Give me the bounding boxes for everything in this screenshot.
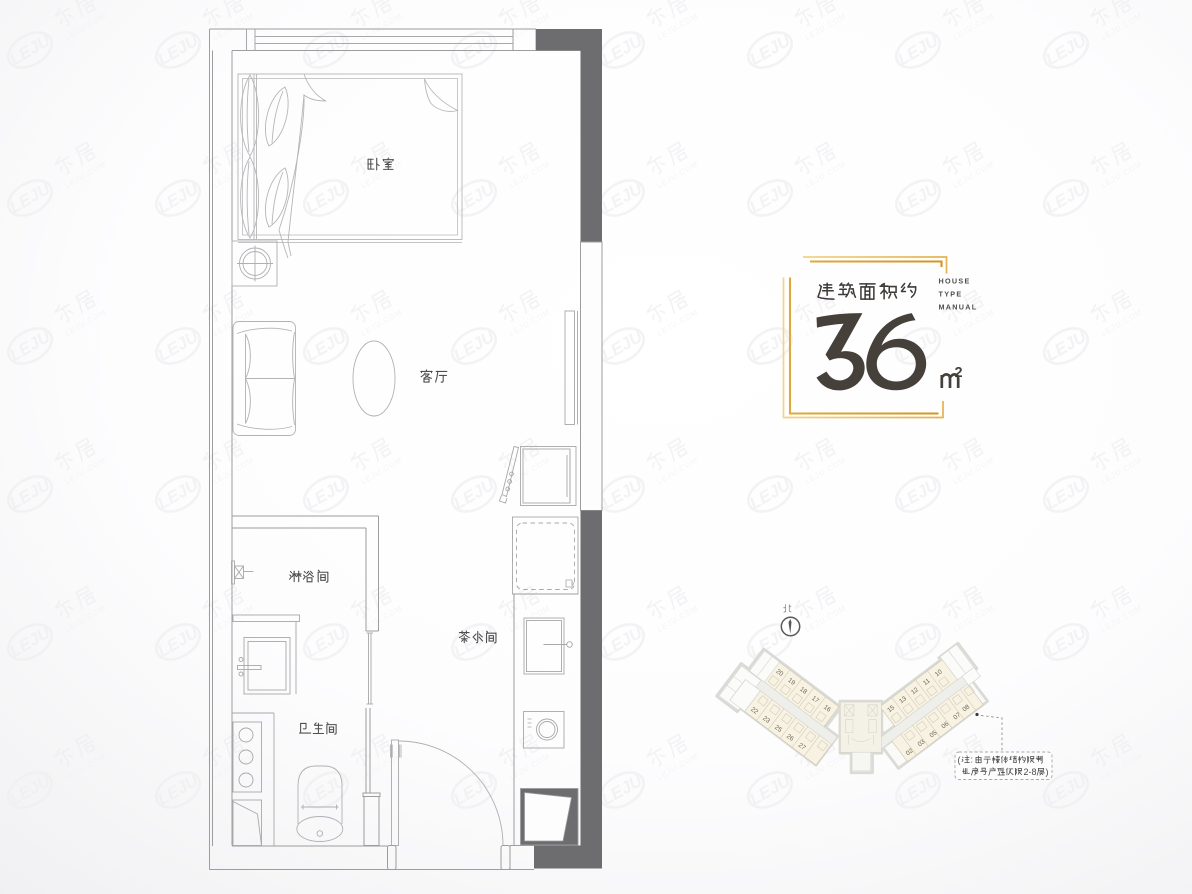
svg-text:TYPE: TYPE xyxy=(939,290,963,299)
svg-text:MANUAL: MANUAL xyxy=(939,303,978,312)
svg-text:2-8: 2-8 xyxy=(1024,767,1037,777)
svg-text:2: 2 xyxy=(955,365,963,381)
svg-text:(: ( xyxy=(958,755,961,765)
svg-text:HOUSE: HOUSE xyxy=(939,277,971,286)
svg-text::: : xyxy=(971,755,974,765)
svg-text:): ) xyxy=(1046,767,1049,777)
